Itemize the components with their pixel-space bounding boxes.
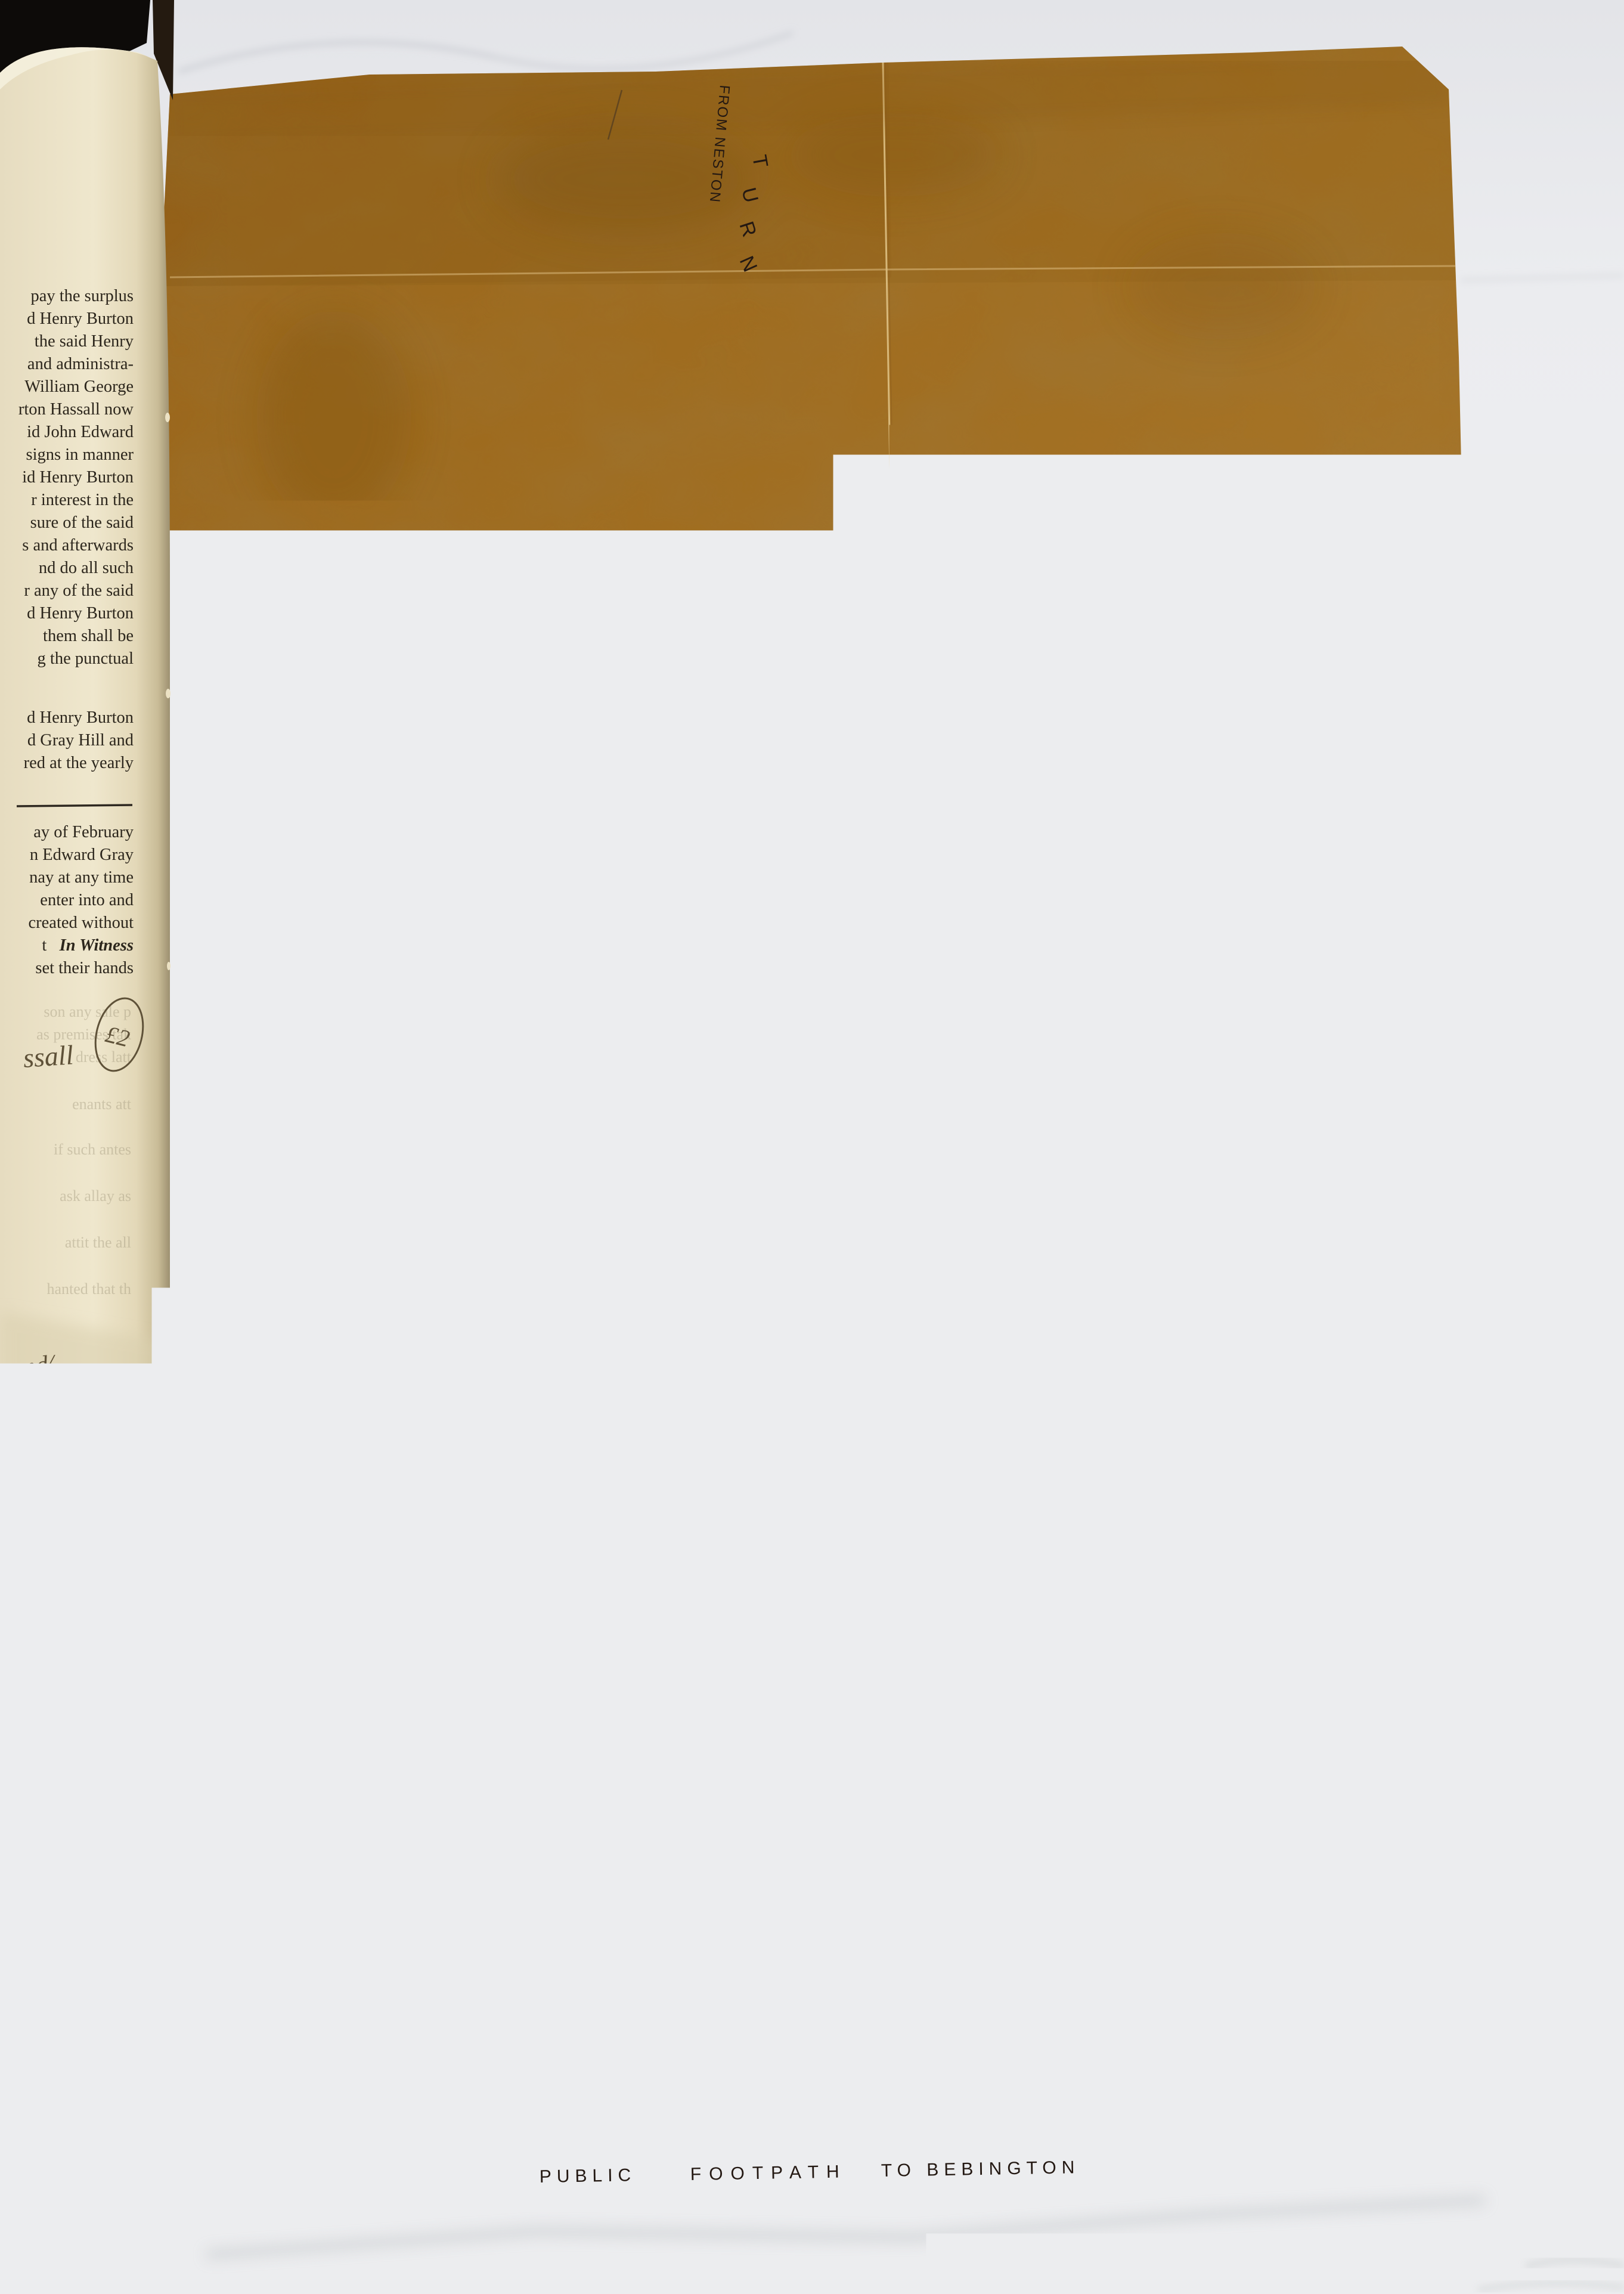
svg-text:s: s: [736, 1101, 743, 1120]
svg-text:d Henry Burton: d Henry Burton: [27, 604, 134, 623]
svg-text:enter into and: enter into and: [40, 891, 134, 909]
svg-text:s: s: [738, 1256, 745, 1276]
svg-text:s: s: [966, 741, 973, 760]
svg-text:the said Henry: the said Henry: [35, 332, 134, 351]
svg-text:r interest in the: r interest in the: [31, 491, 134, 509]
svg-text:d Henry Burton: d Henry Burton: [27, 309, 134, 328]
svg-text:nd do all such: nd do all such: [39, 559, 134, 577]
svg-text:sure of the said: sure of the said: [30, 513, 134, 532]
svg-text:id Henry Burton: id Henry Burton: [22, 468, 134, 487]
svg-text:William George: William George: [24, 377, 134, 396]
svg-text:F.F: F.F: [799, 2113, 832, 2136]
svg-text:nay at any time: nay at any time: [29, 868, 134, 887]
svg-text:rton Hassall now: rton Hassall now: [18, 400, 134, 419]
svg-text:TO BEBINGTON: TO BEBINGTON: [881, 2157, 1080, 2181]
svg-text:created without: created without: [29, 914, 134, 932]
svg-text:red at the yearly: red at the yearly: [24, 754, 134, 772]
svg-text:s: s: [525, 1125, 532, 1144]
svg-text:set their hands: set their hands: [35, 959, 134, 977]
svg-text:J: J: [848, 902, 863, 931]
svg-text:PUBLIC: PUBLIC: [540, 2165, 637, 2187]
svg-text:them shall be: them shall be: [43, 627, 134, 645]
svg-text:s: s: [667, 1761, 674, 1781]
svg-text:s: s: [450, 1329, 457, 1348]
svg-text:s: s: [863, 862, 870, 882]
svg-text:s and afterwards: s and afterwards: [22, 536, 134, 555]
svg-text:r any of the said: r any of the said: [24, 581, 134, 600]
svg-text:wrehlake a p: wrehlake a p: [52, 1489, 131, 1506]
svg-text:id John Edward: id John Edward: [27, 423, 134, 441]
svg-text:s: s: [417, 1284, 424, 1304]
svg-text:g the punctual: g the punctual: [38, 649, 134, 668]
svg-text:n Edward Gray: n Edward Gray: [30, 846, 134, 864]
svg-text:ssall: ssall: [22, 1039, 75, 1073]
svg-text:ask allay as: ask allay as: [60, 1187, 131, 1205]
svg-text:son any sale p: son any sale p: [44, 1003, 131, 1020]
svg-text:s: s: [334, 2025, 341, 2045]
svg-text:enants att: enants att: [72, 1095, 132, 1113]
svg-text:if such antes: if such antes: [54, 1141, 131, 1158]
svg-text:s: s: [1031, 576, 1039, 596]
svg-text:attit the all: attit the all: [65, 1234, 131, 1251]
svg-text:t In Witness: t In Witness: [42, 936, 134, 955]
svg-text:s: s: [401, 1381, 408, 1401]
svg-text:signs in manner: signs in manner: [26, 445, 134, 464]
svg-text:ay of February: ay of February: [33, 823, 134, 841]
svg-text:d Henry Burton: d Henry Burton: [27, 708, 134, 727]
svg-text:}: }: [55, 1383, 76, 1432]
svg-text:FOOTPATH: FOOTPATH: [690, 2162, 847, 2184]
svg-text:d Gray Hill and: d Gray Hill and: [27, 731, 134, 750]
svg-text:2: 2: [859, 1732, 875, 1769]
svg-text:hanted that th: hanted that th: [47, 1280, 131, 1298]
svg-text:semnpressaid s: semnpressaid s: [38, 1465, 131, 1482]
svg-text:pay the surplus: pay the surplus: [30, 287, 134, 305]
svg-text:and administra-: and administra-: [27, 355, 134, 373]
